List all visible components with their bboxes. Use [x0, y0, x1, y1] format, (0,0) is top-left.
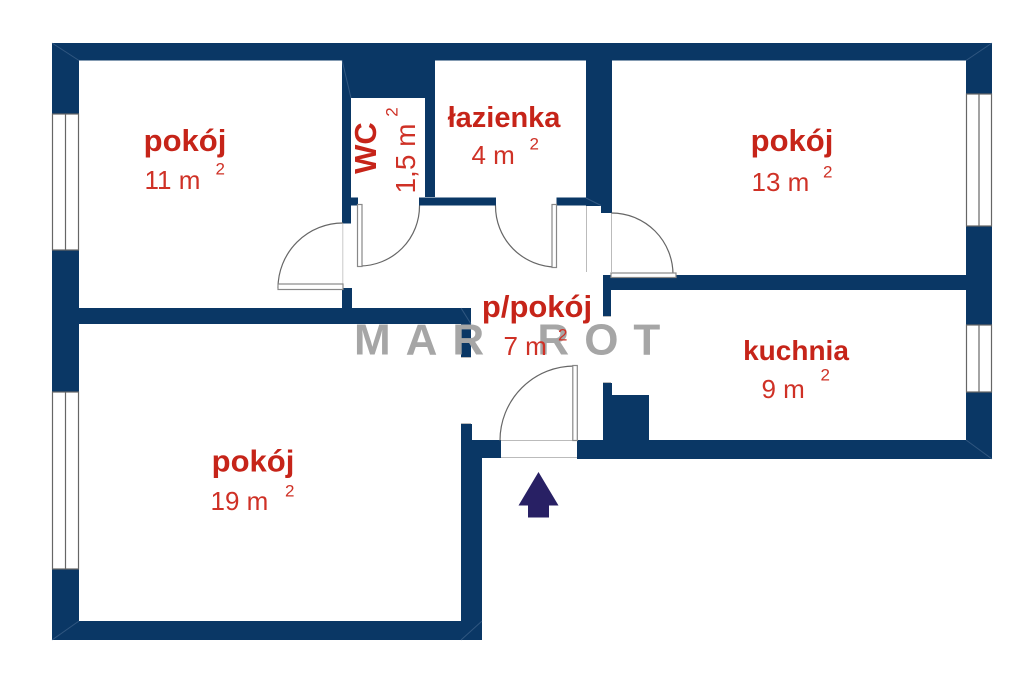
svg-text:pokój: pokój	[751, 123, 834, 158]
svg-text:2: 2	[821, 366, 830, 385]
svg-text:19 m: 19 m	[211, 486, 269, 516]
svg-text:pokój: pokój	[212, 444, 295, 479]
svg-text:WC: WC	[348, 122, 383, 174]
svg-text:kuchnia: kuchnia	[743, 335, 849, 366]
svg-text:2: 2	[216, 160, 225, 179]
svg-text:2: 2	[530, 135, 539, 154]
svg-text:2: 2	[285, 482, 294, 501]
svg-text:4 m: 4 m	[472, 140, 515, 170]
svg-text:11 m: 11 m	[145, 165, 201, 195]
svg-text:13 m: 13 m	[752, 167, 810, 197]
svg-text:łazienka: łazienka	[448, 102, 562, 134]
svg-text:1,5 m: 1,5 m	[390, 123, 421, 193]
svg-text:2: 2	[558, 326, 567, 345]
svg-text:p/pokój: p/pokój	[482, 289, 592, 324]
svg-text:9 m: 9 m	[762, 374, 805, 404]
svg-text:2: 2	[383, 107, 402, 116]
svg-text:pokój: pokój	[144, 123, 227, 158]
svg-text:2: 2	[823, 163, 832, 182]
svg-text:7 m: 7 m	[504, 331, 547, 361]
